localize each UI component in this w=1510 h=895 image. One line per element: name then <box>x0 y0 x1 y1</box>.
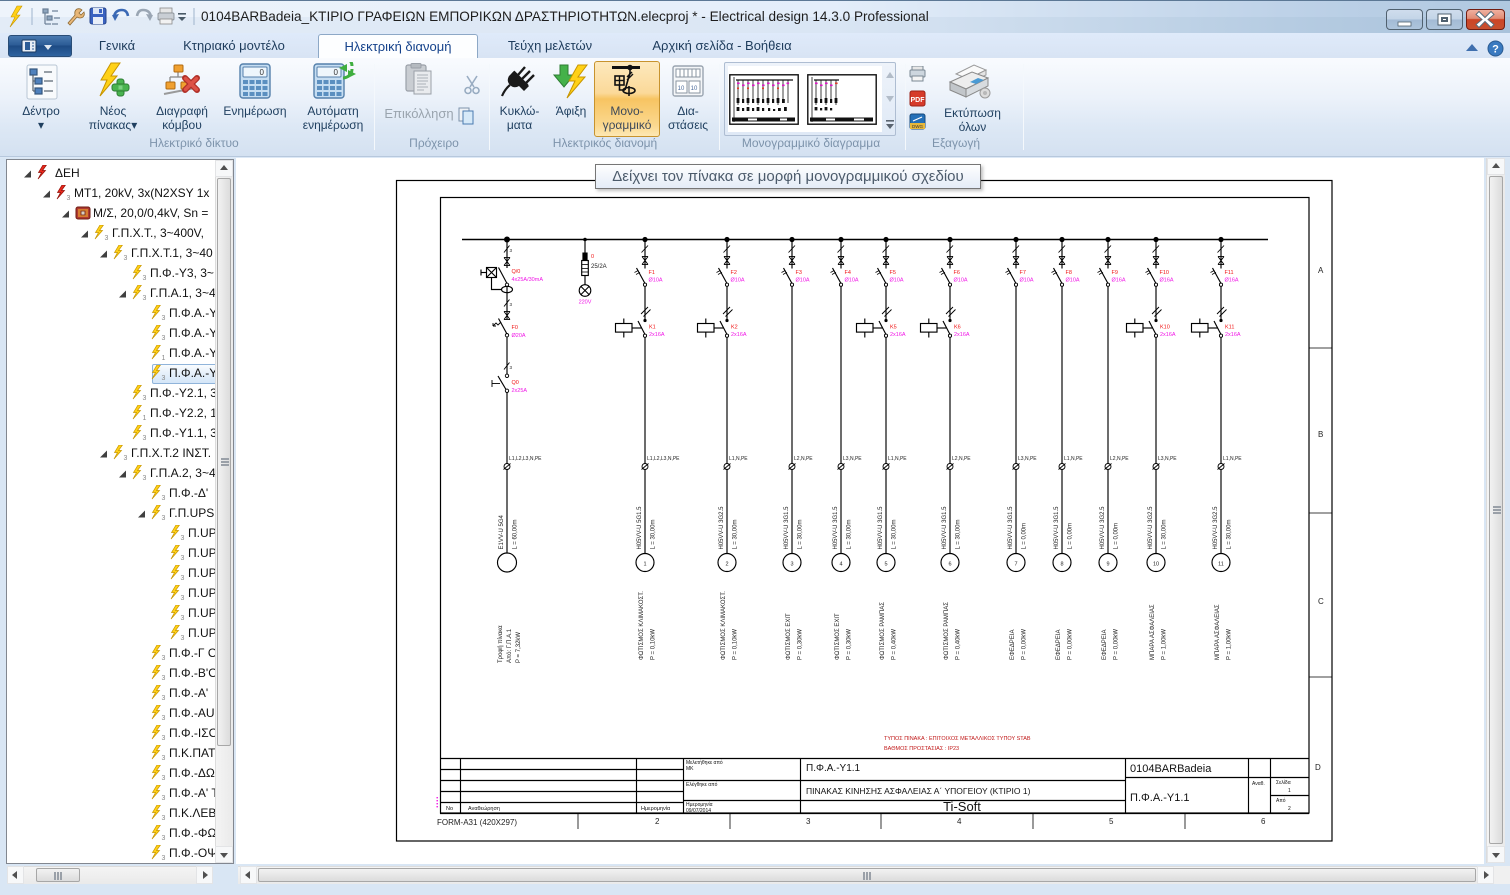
svg-text:4x25A/30mA: 4x25A/30mA <box>512 277 544 283</box>
svg-text:K2: K2 <box>731 325 738 331</box>
svg-text:2x16A: 2x16A <box>1160 332 1176 338</box>
svg-text:L1,L2,L3,N,PE: L1,L2,L3,N,PE <box>509 456 542 462</box>
svg-text:ΦΩΤΙΣΜΟΣ ΚΛΙΜΑΚΟΣΤ.: ΦΩΤΙΣΜΟΣ ΚΛΙΜΑΚΟΣΤ. <box>721 591 727 660</box>
svg-text:F4: F4 <box>845 270 851 276</box>
svg-text:Ø16A: Ø16A <box>1112 278 1126 284</box>
svg-text:Ø10A: Ø10A <box>1020 278 1034 284</box>
svg-text:1: 1 <box>1288 788 1291 794</box>
svg-text:K5: K5 <box>890 325 897 331</box>
svg-text:Από: Από <box>1276 797 1286 804</box>
svg-text:L1,N,PE: L1,N,PE <box>1064 456 1083 462</box>
svg-text:L2,N,PE: L2,N,PE <box>1110 456 1129 462</box>
svg-text:L = 0,00m: L = 0,00m <box>1114 523 1120 550</box>
svg-text:Τροφή πίνακα: Τροφή πίνακα <box>497 625 504 663</box>
svg-text:ΕΦΕΔΡΕΙΑ: ΕΦΕΔΡΕΙΑ <box>1102 630 1108 660</box>
svg-text:3: 3 <box>162 755 166 761</box>
svg-text:3: 3 <box>67 195 71 201</box>
svg-text:L = 30,00m: L = 30,00m <box>847 520 853 550</box>
svg-text:Ø10A: Ø10A <box>1066 278 1080 284</box>
svg-text:2: 2 <box>655 817 660 826</box>
svg-text:F10: F10 <box>1160 270 1169 276</box>
svg-text:?: ? <box>1492 44 1499 56</box>
svg-text:5: 5 <box>884 562 887 568</box>
svg-text:Ελέγθηκε από: Ελέγθηκε από <box>686 781 718 788</box>
svg-text:P = 1,00kW: P = 1,00kW <box>1227 629 1233 660</box>
svg-text:0: 0 <box>334 68 339 77</box>
svg-text:P = 0,40kW: P = 0,40kW <box>892 629 898 660</box>
svg-text:2x16A: 2x16A <box>731 332 747 338</box>
svg-text:F2: F2 <box>731 270 737 276</box>
svg-text:2x16A: 2x16A <box>890 332 906 338</box>
svg-text:Ø20A: Ø20A <box>512 333 526 339</box>
svg-text:2x25A: 2x25A <box>512 388 528 394</box>
svg-text:Ø10A: Ø10A <box>796 278 810 284</box>
svg-text:P = 0,30kW: P = 0,30kW <box>798 629 804 660</box>
svg-text:D: D <box>1315 763 1321 772</box>
svg-text:3: 3 <box>143 295 147 301</box>
svg-text:6: 6 <box>1261 817 1266 826</box>
svg-text:Σελίδα: Σελίδα <box>1276 780 1291 786</box>
svg-text:Αναθεώρηση: Αναθεώρηση <box>468 805 500 812</box>
svg-text:K6: K6 <box>954 325 961 331</box>
svg-text:Ø16A: Ø16A <box>1225 278 1239 284</box>
svg-text:L = 30,00m: L = 30,00m <box>798 520 804 550</box>
svg-text:3: 3 <box>162 675 166 681</box>
svg-text:L2,N,PE: L2,N,PE <box>952 456 971 462</box>
svg-text:F3: F3 <box>796 270 802 276</box>
svg-text:L = 30,00m: L = 30,00m <box>1227 520 1233 550</box>
svg-text:P = 0,10kW: P = 0,10kW <box>733 629 739 660</box>
svg-text:L1,N,PE: L1,N,PE <box>888 456 907 462</box>
svg-text:5: 5 <box>1109 817 1114 826</box>
svg-text:L1,N,PE: L1,N,PE <box>1223 456 1242 462</box>
svg-text:8: 8 <box>1060 562 1063 568</box>
svg-text:Q/0: Q/0 <box>512 269 521 275</box>
svg-text:P = 1,00kW: P = 1,00kW <box>1162 629 1168 660</box>
svg-text:ΜΠΑΡΑ ΑΣΦΑΛΕΙΑΣ: ΜΠΑΡΑ ΑΣΦΑΛΕΙΑΣ <box>1215 604 1221 660</box>
svg-text:3: 3 <box>143 475 147 481</box>
svg-text:Ø10A: Ø10A <box>954 278 968 284</box>
svg-text:F0: F0 <box>512 325 518 331</box>
svg-text:3: 3 <box>162 735 166 741</box>
svg-text:H05VV-U 3G1.5: H05VV-U 3G1.5 <box>1008 506 1014 550</box>
svg-text:10: 10 <box>691 86 698 92</box>
svg-text:H05VV-U 3G1.5: H05VV-U 3G1.5 <box>878 506 884 550</box>
svg-text:L = 30,00m: L = 30,00m <box>892 520 898 550</box>
svg-text:F8: F8 <box>1066 270 1072 276</box>
svg-text:ΦΩΤΙΣΜΟΣ EXIT: ΦΩΤΙΣΜΟΣ EXIT <box>835 613 841 660</box>
svg-text:3: 3 <box>181 615 185 621</box>
svg-text:H05VV-U 3G2.5: H05VV-U 3G2.5 <box>1100 506 1106 550</box>
svg-text:3: 3 <box>806 817 811 826</box>
svg-text:P = 0,30kW: P = 0,30kW <box>847 629 853 660</box>
svg-text:3: 3 <box>124 455 128 461</box>
svg-text:FORM-A31 (420X297): FORM-A31 (420X297) <box>437 818 517 827</box>
svg-text:Ø16A: Ø16A <box>1160 278 1174 284</box>
svg-text:3: 3 <box>162 715 166 721</box>
svg-text:3: 3 <box>162 835 166 841</box>
svg-text:2x16A: 2x16A <box>649 332 665 338</box>
svg-text:ΦΩΤΙΣΜΟΣ ΡΑΜΠΑΣ: ΦΩΤΙΣΜΟΣ ΡΑΜΠΑΣ <box>944 602 950 660</box>
svg-text:Q0: Q0 <box>512 380 519 386</box>
svg-text:L1,N,PE: L1,N,PE <box>729 456 748 462</box>
svg-text:3: 3 <box>143 435 147 441</box>
svg-text:P = 0,00kW: P = 0,00kW <box>1068 629 1074 660</box>
svg-text:2: 2 <box>1288 806 1291 812</box>
svg-text:H05VV-U 3G2.5: H05VV-U 3G2.5 <box>719 506 725 550</box>
svg-text:3: 3 <box>162 655 166 661</box>
svg-text:P = 0,00kW: P = 0,00kW <box>1022 629 1028 660</box>
svg-text:L = 0,00m: L = 0,00m <box>1068 523 1074 550</box>
svg-text:L3,N,PE: L3,N,PE <box>1158 456 1177 462</box>
svg-text:C: C <box>1318 597 1324 606</box>
svg-text:H05VV-U 3G1.5: H05VV-U 3G1.5 <box>784 506 790 550</box>
svg-text:7: 7 <box>1014 562 1017 568</box>
svg-text:Ti-Soft: Ti-Soft <box>943 799 981 814</box>
svg-text:ΦΩΤΙΣΜΟΣ ΡΑΜΠΑΣ: ΦΩΤΙΣΜΟΣ ΡΑΜΠΑΣ <box>880 602 886 660</box>
svg-text:3: 3 <box>162 515 166 521</box>
svg-text:10: 10 <box>678 86 685 92</box>
svg-text:Μελετήθηκε από: Μελετήθηκε από <box>686 759 723 766</box>
svg-text:F9: F9 <box>1112 270 1118 276</box>
svg-text:L3,N,PE: L3,N,PE <box>1018 456 1037 462</box>
svg-text:K1: K1 <box>649 325 656 331</box>
svg-text:K11: K11 <box>1225 325 1234 331</box>
svg-text:Ø10A: Ø10A <box>731 278 745 284</box>
svg-text:2x16A: 2x16A <box>1225 332 1241 338</box>
svg-text:3: 3 <box>162 315 166 321</box>
svg-text:H05VV-U 3G1.5: H05VV-U 3G1.5 <box>833 506 839 550</box>
svg-text:3: 3 <box>105 235 109 241</box>
svg-text:L = 30,00m: L = 30,00m <box>651 520 657 550</box>
svg-text:Ø10A: Ø10A <box>649 278 663 284</box>
svg-text:F1: F1 <box>649 270 655 276</box>
svg-text:ΦΩΤΙΣΜΟΣ EXIT: ΦΩΤΙΣΜΟΣ EXIT <box>786 613 792 660</box>
svg-text:L = 60,00m: L = 60,00m <box>513 520 519 550</box>
svg-text:3: 3 <box>790 562 793 568</box>
svg-text:ΦΩΤΙΣΜΟΣ ΚΛΙΜΑΚΟΣΤ.: ΦΩΤΙΣΜΟΣ ΚΛΙΜΑΚΟΣΤ. <box>639 591 645 660</box>
svg-text:H05VV-U 3G2.5: H05VV-U 3G2.5 <box>1213 506 1219 550</box>
svg-text:F6: F6 <box>954 270 960 276</box>
svg-text:F7: F7 <box>1020 270 1026 276</box>
svg-text:A: A <box>1318 266 1324 275</box>
svg-text:3: 3 <box>162 795 166 801</box>
svg-text:4: 4 <box>957 817 962 826</box>
svg-text:L1,L2,L3,N,PE: L1,L2,L3,N,PE <box>647 456 680 462</box>
svg-text:P = 7,32kW: P = 7,32kW <box>516 632 522 663</box>
svg-text:3: 3 <box>162 815 166 821</box>
svg-text:ΤΥΠΟΣ ΠΙΝΑΚΑ : ΕΠΙΤΟΙΧΟΣ ΜΕΤΑΛ: ΤΥΠΟΣ ΠΙΝΑΚΑ : ΕΠΙΤΟΙΧΟΣ ΜΕΤΑΛΛΙΚΟΣ ΤΥΠΟ… <box>884 736 1031 742</box>
svg-text:H05VV-U 3G1.5: H05VV-U 3G1.5 <box>1054 506 1060 550</box>
svg-text:P = 0,40kW: P = 0,40kW <box>956 629 962 660</box>
svg-text:E1VV-U 5G4: E1VV-U 5G4 <box>499 514 505 549</box>
svg-text:1: 1 <box>162 355 166 361</box>
svg-text:3: 3 <box>181 555 185 561</box>
svg-text:25/2A: 25/2A <box>591 264 607 270</box>
svg-text:PDF: PDF <box>911 97 926 104</box>
svg-text:3: 3 <box>162 855 166 861</box>
svg-text:P = 0,00kW: P = 0,00kW <box>1114 629 1120 660</box>
svg-text:ΜΠΑΡΑ ΑΣΦΑΛΕΙΑΣ: ΜΠΑΡΑ ΑΣΦΑΛΕΙΑΣ <box>1150 604 1156 660</box>
svg-text:L = 30,00m: L = 30,00m <box>733 520 739 550</box>
svg-text:Αναθ.: Αναθ. <box>1252 781 1265 787</box>
svg-text:ΒΑΘΜΟΣ ΠΡΟΣΤΑΣΙΑΣ : ΙΡ23: ΒΑΘΜΟΣ ΠΡΟΣΤΑΣΙΑΣ : ΙΡ23 <box>884 746 959 752</box>
svg-text:3: 3 <box>162 775 166 781</box>
svg-text:3: 3 <box>181 535 185 541</box>
svg-text:P = 0,10kW: P = 0,10kW <box>651 629 657 660</box>
svg-text:Νο: Νο <box>446 806 453 812</box>
svg-text:3: 3 <box>181 595 185 601</box>
svg-text:3: 3 <box>181 575 185 581</box>
svg-text:Ø10A: Ø10A <box>845 278 859 284</box>
svg-text:1: 1 <box>643 562 646 568</box>
svg-text:3: 3 <box>143 395 147 401</box>
svg-text:0: 0 <box>591 254 594 260</box>
svg-text:L = 30,00m: L = 30,00m <box>1162 520 1168 550</box>
svg-text:K10: K10 <box>1160 325 1170 331</box>
svg-text:DWG: DWG <box>912 124 923 129</box>
svg-text:6: 6 <box>948 562 951 568</box>
svg-text:F5: F5 <box>890 270 896 276</box>
svg-text:1: 1 <box>143 415 147 421</box>
svg-text:0104BARBadeia: 0104BARBadeia <box>1130 763 1212 775</box>
svg-text:3: 3 <box>162 335 166 341</box>
svg-text:L2,N,PE: L2,N,PE <box>794 456 813 462</box>
svg-text:3: 3 <box>162 695 166 701</box>
svg-text:10: 10 <box>1153 562 1159 568</box>
svg-text:H05VV-U 3G2.5: H05VV-U 3G2.5 <box>1148 506 1154 550</box>
svg-text:Π.Φ.Α.-Υ1.1: Π.Φ.Α.-Υ1.1 <box>806 763 861 774</box>
svg-text:H05VV-U 3G1.5: H05VV-U 3G1.5 <box>942 506 948 550</box>
svg-text:3: 3 <box>143 275 147 281</box>
svg-text:11: 11 <box>1218 562 1224 568</box>
svg-text:ΜΚ: ΜΚ <box>686 766 694 772</box>
svg-text:ΠΙΝΑΚΑΣ ΚΙΝΗΣΗΣ ΑΣΦΑΛΕΙΑΣ Α΄ Υ: ΠΙΝΑΚΑΣ ΚΙΝΗΣΗΣ ΑΣΦΑΛΕΙΑΣ Α΄ ΥΠΟΓΕΙΟΥ (Κ… <box>806 786 1031 796</box>
svg-text:ΕΦΕΔΡΕΙΑ: ΕΦΕΔΡΕΙΑ <box>1056 630 1062 660</box>
svg-text:Ø10A: Ø10A <box>890 278 904 284</box>
svg-text:Ημερομηνία: Ημερομηνία <box>641 806 671 812</box>
svg-text:L = 0,00m: L = 0,00m <box>1022 523 1028 550</box>
svg-text:3: 3 <box>124 255 128 261</box>
svg-text:B: B <box>1318 430 1323 439</box>
svg-text:L = 30,00m: L = 30,00m <box>956 520 962 550</box>
svg-text:0: 0 <box>260 68 265 77</box>
svg-text:Π.Φ.Α.-Υ1.1: Π.Φ.Α.-Υ1.1 <box>1130 792 1190 804</box>
svg-text:3: 3 <box>181 635 185 641</box>
svg-text:4: 4 <box>839 562 842 568</box>
svg-text:09/07/2014: 09/07/2014 <box>686 808 711 814</box>
svg-text:L3,N,PE: L3,N,PE <box>843 456 862 462</box>
svg-text:ΕΦΕΔΡΕΙΑ: ΕΦΕΔΡΕΙΑ <box>1010 630 1016 660</box>
svg-text:3: 3 <box>162 375 166 381</box>
svg-text:9: 9 <box>1106 562 1109 568</box>
svg-text:2x16A: 2x16A <box>954 332 970 338</box>
svg-text:Από: Γ.Π.Α.1: Από: Γ.Π.Α.1 <box>506 628 513 663</box>
svg-text:F11: F11 <box>1225 270 1234 276</box>
svg-text:H05VV-U 5G1.5: H05VV-U 5G1.5 <box>637 506 643 550</box>
svg-text:2: 2 <box>725 562 728 568</box>
svg-text:220V: 220V <box>579 300 592 306</box>
svg-text:3: 3 <box>162 495 166 501</box>
